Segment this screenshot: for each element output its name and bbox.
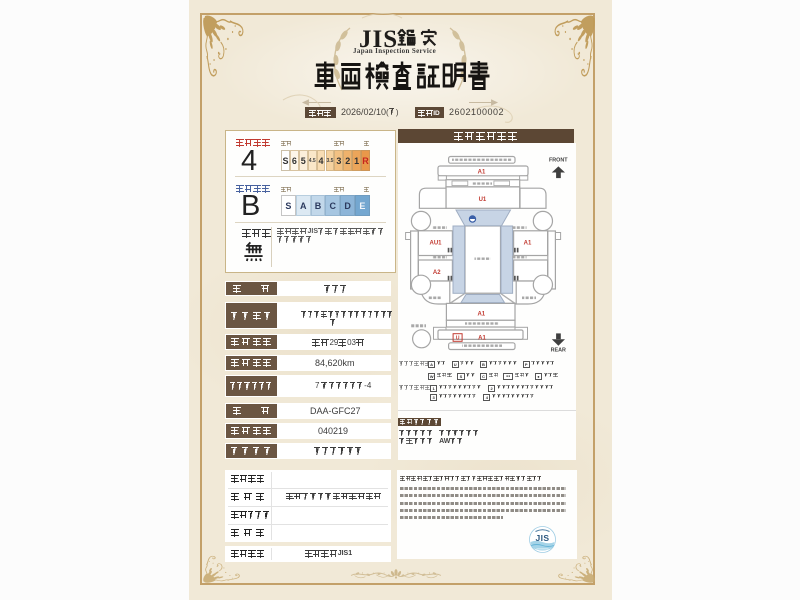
svg-text:U: U <box>456 336 460 342</box>
svg-text:REAR: REAR <box>551 348 566 354</box>
svg-text:U1: U1 <box>479 197 487 203</box>
svg-text:A1: A1 <box>477 311 485 317</box>
svg-text:A2: A2 <box>433 270 441 276</box>
svg-text:A1: A1 <box>478 170 486 176</box>
svg-text:A1: A1 <box>478 335 486 341</box>
svg-text:JIS: JIS <box>536 533 550 543</box>
svg-text:FRONT: FRONT <box>549 158 568 164</box>
svg-text:AU1: AU1 <box>429 241 442 247</box>
svg-text:A1: A1 <box>524 241 532 247</box>
